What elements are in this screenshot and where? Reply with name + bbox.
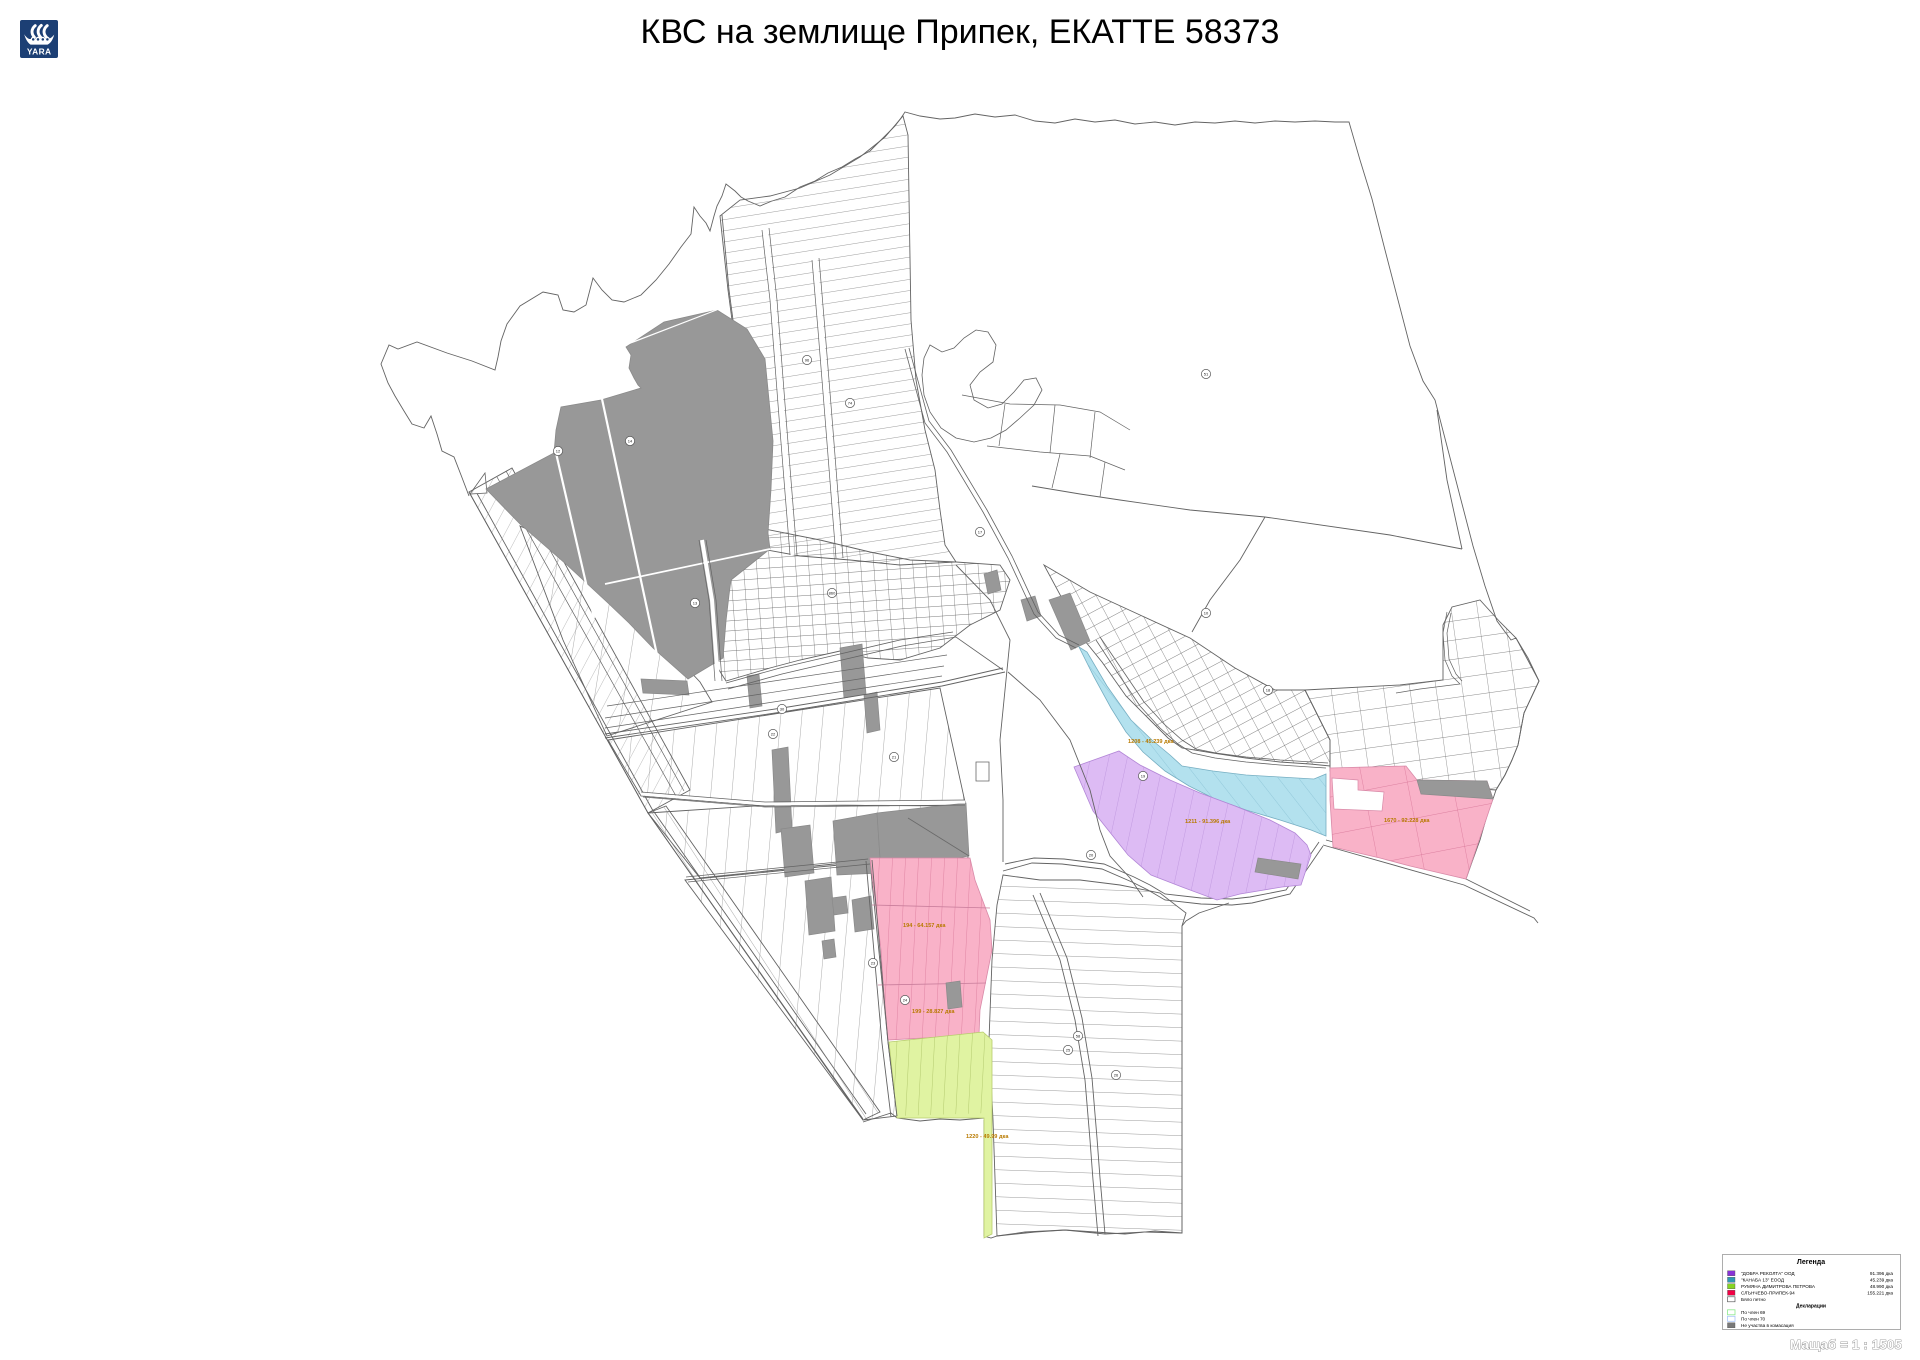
svg-text:51: 51 xyxy=(1204,372,1209,377)
svg-text:Не участва в комасация: Не участва в комасация xyxy=(1741,1323,1794,1328)
svg-text:Декларации: Декларации xyxy=(1796,1303,1826,1309)
svg-text:199 - 28.827 дка: 199 - 28.827 дка xyxy=(912,1009,955,1015)
svg-text:96: 96 xyxy=(805,358,810,363)
svg-text:26: 26 xyxy=(1114,1073,1119,1078)
svg-text:1670 - 92.228 дка: 1670 - 92.228 дка xyxy=(1384,818,1430,824)
svg-text:22: 22 xyxy=(771,732,776,737)
svg-text:194 - 64.157 дка: 194 - 64.157 дка xyxy=(903,923,946,929)
svg-text:18: 18 xyxy=(1266,688,1271,693)
svg-text:74: 74 xyxy=(848,401,853,406)
svg-text:СЛЪНЧЕВО-ПРИПЕК-94: СЛЪНЧЕВО-ПРИПЕК-94 xyxy=(1741,1290,1795,1295)
svg-text:14: 14 xyxy=(628,439,633,444)
svg-text:860: 860 xyxy=(829,591,836,596)
svg-text:РУМЯНА ДИМИТРОВА ПЕТРОВА: РУМЯНА ДИМИТРОВА ПЕТРОВА xyxy=(1741,1284,1816,1289)
svg-text:Легенда: Легенда xyxy=(1797,1259,1825,1266)
svg-text:24: 24 xyxy=(903,998,908,1003)
svg-text:48.990 дка: 48.990 дка xyxy=(1870,1284,1894,1289)
svg-text:10: 10 xyxy=(1204,611,1209,616)
svg-text:155.221 дка: 155.221 дка xyxy=(1867,1290,1893,1295)
svg-text:1211 - 91.396 дка: 1211 - 91.396 дка xyxy=(1185,819,1231,825)
svg-text:58: 58 xyxy=(1076,1034,1081,1039)
svg-text:21: 21 xyxy=(892,755,897,760)
svg-text:91.396 дка: 91.396 дка xyxy=(1870,1271,1894,1276)
svg-text:13: 13 xyxy=(693,601,698,606)
svg-text:17: 17 xyxy=(978,530,983,535)
svg-text:30: 30 xyxy=(780,707,785,712)
svg-text:1220 - 49.99 дка: 1220 - 49.99 дка xyxy=(966,1134,1009,1140)
svg-text:12: 12 xyxy=(556,449,561,454)
svg-text:45.239 дка: 45.239 дка xyxy=(1870,1277,1894,1282)
svg-text:23: 23 xyxy=(871,961,876,966)
svg-text:20: 20 xyxy=(1089,853,1094,858)
svg-text:25: 25 xyxy=(1066,1048,1071,1053)
svg-text:По член 69: По член 69 xyxy=(1741,1310,1766,1315)
svg-text:По член 70: По член 70 xyxy=(1741,1316,1766,1321)
svg-text:Мащаб = 1 : 1505: Мащаб = 1 : 1505 xyxy=(1790,1337,1902,1352)
svg-text:"ДОБРА РЕКОЛТА" ООД: "ДОБРА РЕКОЛТА" ООД xyxy=(1741,1271,1795,1276)
svg-text:19: 19 xyxy=(1141,774,1146,779)
svg-text:1208 - 45.239 дка: 1208 - 45.239 дка xyxy=(1128,739,1174,745)
svg-text:Бяло петно: Бяло петно xyxy=(1741,1297,1766,1302)
svg-text:"КАНАБА 13" ЕООД: "КАНАБА 13" ЕООД xyxy=(1741,1277,1785,1282)
